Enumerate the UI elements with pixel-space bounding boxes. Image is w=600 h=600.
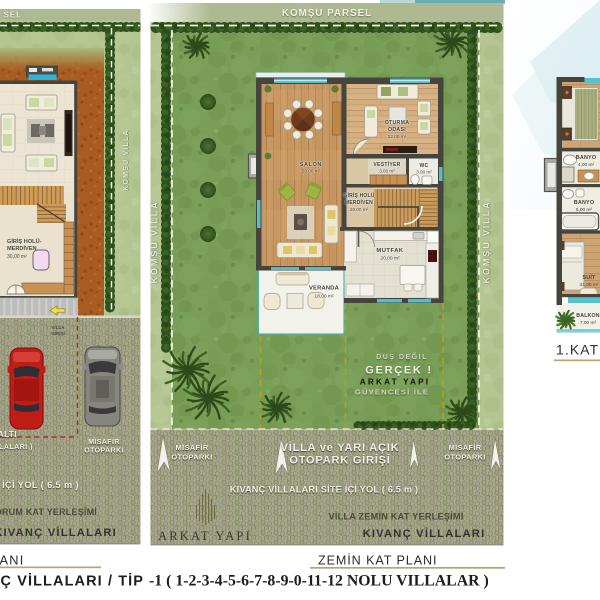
svg-text:1.KAT PLANI: 1.KAT PLANI: [556, 343, 600, 358]
svg-text:KOMSU VILLA: KOMSU VILLA: [123, 129, 130, 190]
svg-text:OTOPARKI: OTOPARKI: [444, 453, 485, 462]
svg-text:KIVANÇ VİLLALARI SİTE İÇİ YOL: KIVANÇ VİLLALARI SİTE İÇİ YOL ( 6.5 m ): [230, 485, 419, 495]
svg-text:KIVANÇ VİLLALARI: KIVANÇ VİLLALARI: [0, 526, 117, 539]
svg-text:OTOPARK GİRİŞİ: OTOPARK GİRİŞİ: [289, 454, 390, 467]
svg-text:SUİT: SUİT: [582, 274, 596, 281]
svg-text:GÜVENCESİ İLE: GÜVENCESİ İLE: [355, 388, 429, 397]
svg-text:VİLLA ZEMİN KAT YERLEŞİMİ: VİLLA ZEMİN KAT YERLEŞİMİ: [329, 512, 464, 522]
svg-text:MİSAFİR: MİSAFİR: [88, 438, 120, 446]
svg-text:OTOPARKI: OTOPARKI: [84, 448, 124, 455]
svg-text:7,00 m²: 7,00 m²: [580, 320, 597, 326]
svg-text:20.00 m²: 20.00 m²: [350, 207, 369, 212]
svg-text:VESTİYER: VESTİYER: [373, 161, 400, 168]
svg-text:GİRİŞ HOLÜ-: GİRİŞ HOLÜ-: [7, 238, 42, 245]
svg-text:VİLLA ve YARI AÇIK: VİLLA ve YARI AÇIK: [281, 441, 400, 454]
svg-text:VERANDA: VERANDA: [309, 286, 340, 292]
svg-text:OTOPARKI: OTOPARKI: [171, 453, 212, 462]
svg-text:-1 ( 1-2-3-4-5-6-7-8-9-0-11-12: -1 ( 1-2-3-4-5-6-7-8-9-0-11-12 NOLU VILL…: [149, 573, 489, 590]
svg-text:GİRİŞİ: GİRİŞİ: [51, 330, 65, 336]
svg-text:MERDİVEN: MERDİVEN: [7, 245, 37, 252]
svg-text:BALKON: BALKON: [576, 313, 599, 319]
svg-text:30,00 m²: 30,00 m²: [7, 254, 27, 260]
svg-text:20,00 m²: 20,00 m²: [380, 256, 400, 262]
svg-text:5,00 m²: 5,00 m²: [576, 207, 593, 213]
svg-text:MİSAFİR: MİSAFİR: [176, 443, 209, 452]
svg-text:DUŞ DEĞİL: DUŞ DEĞİL: [376, 352, 428, 361]
svg-text:VİLLA: VİLLA: [51, 324, 65, 330]
svg-text:BANYO: BANYO: [574, 200, 594, 206]
svg-text:SİTE İÇİ YOL ( 6.5 m ): SİTE İÇİ YOL ( 6.5 m ): [0, 480, 79, 490]
svg-text:ARKAT YAPI: ARKAT YAPI: [158, 529, 252, 543]
svg-text:LALARI ): LALARI ): [0, 444, 33, 451]
svg-text:MİSAFİR: MİSAFİR: [449, 443, 482, 452]
svg-text:WC: WC: [420, 163, 429, 169]
svg-text:18,00 m²: 18,00 m²: [315, 294, 334, 300]
svg-text:31,00 m²: 31,00 m²: [580, 282, 599, 288]
svg-text:SALON: SALON: [300, 162, 322, 168]
svg-text:3.00 m²: 3.00 m²: [416, 170, 432, 175]
svg-text:4,00 m²: 4,00 m²: [578, 162, 595, 168]
svg-text:MUTFAK: MUTFAK: [376, 248, 403, 254]
svg-text:ALTI: ALTI: [0, 430, 17, 439]
svg-text:ODASI: ODASI: [388, 127, 406, 133]
svg-text:MERDİVEN: MERDİVEN: [345, 199, 373, 206]
svg-text:22.00 m²: 22.00 m²: [388, 134, 407, 139]
svg-text:50.00 m²: 50.00 m²: [302, 169, 321, 174]
svg-text:3.00 m²: 3.00 m²: [379, 169, 395, 174]
svg-text:KOMŞU VİLLA: KOMŞU VİLLA: [482, 200, 492, 283]
svg-text:BODRUM KAT PLANI: BODRUM KAT PLANI: [0, 553, 25, 568]
svg-text:BANYO: BANYO: [576, 155, 596, 161]
svg-text:OTURMA: OTURMA: [385, 120, 410, 126]
svg-text:BODRUM KAT YERLEŞİMİ: BODRUM KAT YERLEŞİMİ: [0, 507, 97, 517]
svg-text:SEL: SEL: [3, 11, 22, 20]
svg-text:GERÇEK !: GERÇEK !: [365, 365, 432, 377]
svg-text:GİRİŞ HOLÜ: GİRİŞ HOLÜ: [343, 192, 374, 199]
svg-text:Ç VİLLALARI / TİP: Ç VİLLALARI / TİP: [1, 573, 145, 590]
svg-text:KIVANÇ VİLLALARI: KIVANÇ VİLLALARI: [363, 527, 486, 540]
svg-text:KOMŞU VİLLA: KOMŞU VİLLA: [150, 200, 160, 283]
svg-text:KOMŞU PARSEL: KOMŞU PARSEL: [282, 8, 372, 19]
svg-text:ZEMİN KAT PLANI: ZEMİN KAT PLANI: [318, 554, 437, 568]
svg-text:ARKAT YAPI: ARKAT YAPI: [360, 378, 431, 387]
